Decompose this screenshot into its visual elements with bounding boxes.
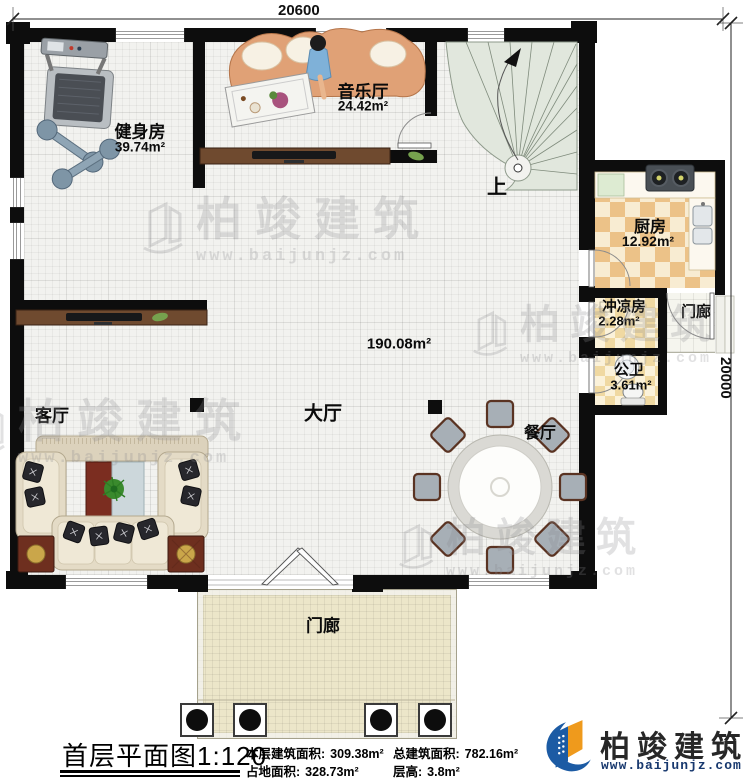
brand-url: www.baijunjz.com [601,758,742,773]
dimension-top: 20600 [278,2,320,19]
plan-title: 首层平面图1:120 [62,736,267,773]
gecko-decor-1 [407,150,425,162]
floor-plan-page: 20600 20000 健身房 39.74m² 音乐厅 24.42m² 上 厨房… [0,0,750,784]
porch-column-1 [180,703,214,737]
stove-icon [646,165,694,191]
dimension-right: 20000 [717,357,734,399]
porch-column-2 [233,703,267,737]
room-label-side-porch: 门廊 [681,301,711,322]
stat-total-area: 总建筑面积:782.16m² [393,743,518,762]
kitchen-prep-area [598,174,624,196]
door-music-room [398,113,431,148]
music-room-set [225,28,425,127]
treadmill-icon [36,38,116,129]
stat-label: 层高: [393,765,422,779]
room-label-toilet: 公卫 [614,359,644,380]
room-area-shower: 2.28m² [598,314,639,329]
room-area-toilet: 3.61m² [610,378,651,393]
room-area-kitchen: 12.92m² [622,233,674,249]
stat-floor-height: 层高:3.8m² [393,761,460,780]
staircase [446,42,577,190]
porch-column-3 [364,703,398,737]
dining-set [414,401,586,573]
room-label-porch: 门廊 [306,612,340,637]
room-area-gym: 39.74m² [115,140,165,155]
sink-icon [693,202,712,244]
stat-label: 占地面积: [246,765,300,779]
tv-cabinet-music [200,148,425,164]
room-label-living: 客厅 [35,402,69,427]
tv-cabinet-gym [16,310,207,325]
door-kitchen [589,250,630,287]
stat-land-area: 占地面积:328.73m² [246,761,359,780]
room-label-hall: 大厅 [304,399,342,426]
dumbbells-icon [33,116,123,193]
stairs-up-label: 上 [487,171,507,200]
gym-set [33,38,123,193]
stat-label: 总建筑面积: [393,747,460,761]
room-area-music: 24.42m² [338,99,388,114]
dining-table [448,435,552,539]
side-table-left [18,536,54,572]
stat-floor-area: 本层建筑面积:309.38m² [246,743,384,762]
brand-logo-icon [537,716,599,778]
room-area-hall: 190.08m² [367,336,431,353]
title-underline [60,770,240,777]
stat-value: 328.73m² [305,765,359,779]
plan-title-text: 首层平面图 [62,741,197,771]
stat-value: 782.16m² [465,747,519,761]
stat-label: 本层建筑面积: [246,747,325,761]
entry-double-door [208,548,353,589]
living-room-set [16,436,208,572]
stat-value: 309.38m² [330,747,384,761]
stat-value: 3.8m² [427,765,460,779]
porch-column-4 [418,703,452,737]
stair-post [514,164,522,172]
room-label-dining: 餐厅 [524,419,556,443]
side-table-right [168,536,204,572]
